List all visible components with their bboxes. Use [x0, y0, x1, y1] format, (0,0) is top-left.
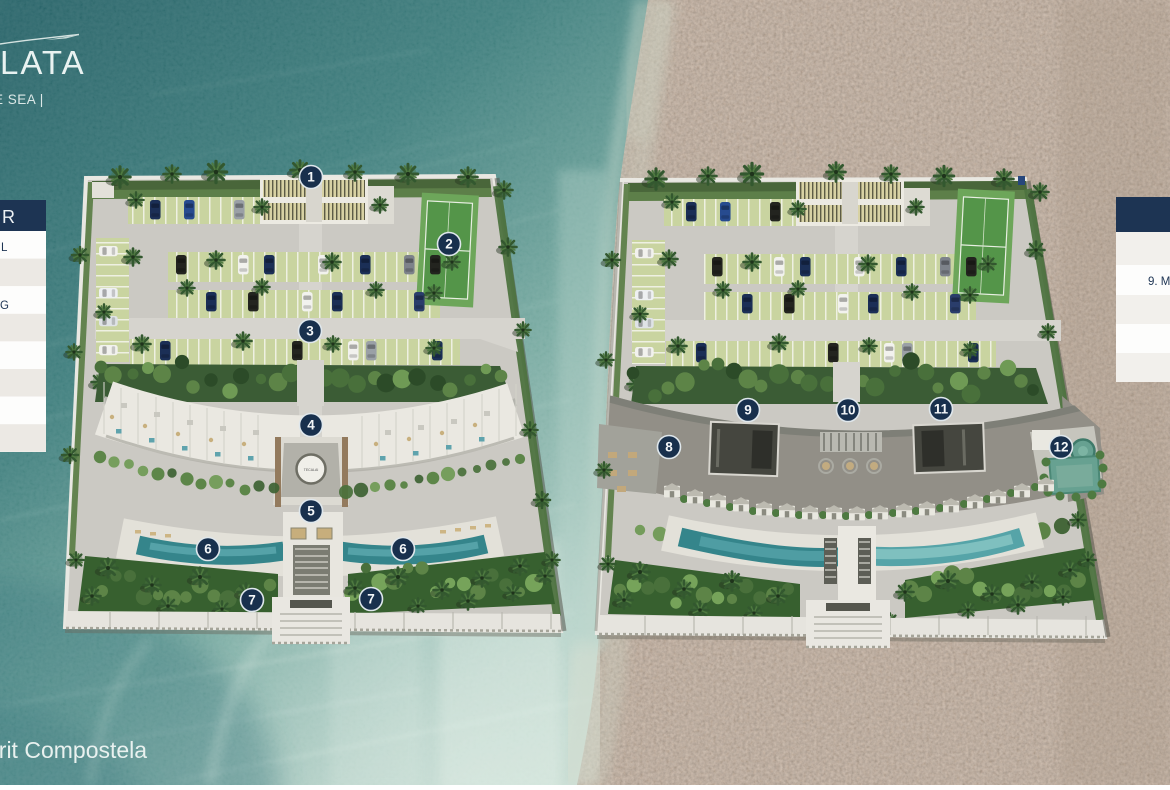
- svg-text:L: L: [1, 242, 8, 254]
- svg-text:G: G: [0, 300, 9, 312]
- svg-text:8: 8: [665, 440, 673, 455]
- svg-text:10: 10: [840, 403, 855, 418]
- svg-text:6: 6: [204, 542, 212, 557]
- svg-text:4: 4: [307, 418, 315, 433]
- svg-text:5: 5: [307, 504, 315, 519]
- svg-text:TECALAI: TECALAI: [304, 468, 319, 472]
- svg-text:LATA: LATA: [0, 44, 86, 81]
- svg-text:6: 6: [399, 542, 407, 557]
- svg-text:7: 7: [367, 592, 375, 607]
- svg-text:9: 9: [744, 403, 752, 418]
- svg-text:11: 11: [934, 402, 949, 417]
- svg-text:E SEA |: E SEA |: [0, 92, 44, 107]
- svg-text:7: 7: [248, 593, 256, 608]
- svg-text:12: 12: [1053, 440, 1068, 455]
- svg-text:1: 1: [307, 170, 315, 185]
- svg-text:3: 3: [306, 324, 314, 339]
- svg-text:arit Compostela: arit Compostela: [0, 737, 147, 763]
- svg-text:2: 2: [445, 237, 453, 252]
- svg-text:R: R: [2, 207, 15, 227]
- svg-text:9. M: 9. M: [1148, 276, 1170, 288]
